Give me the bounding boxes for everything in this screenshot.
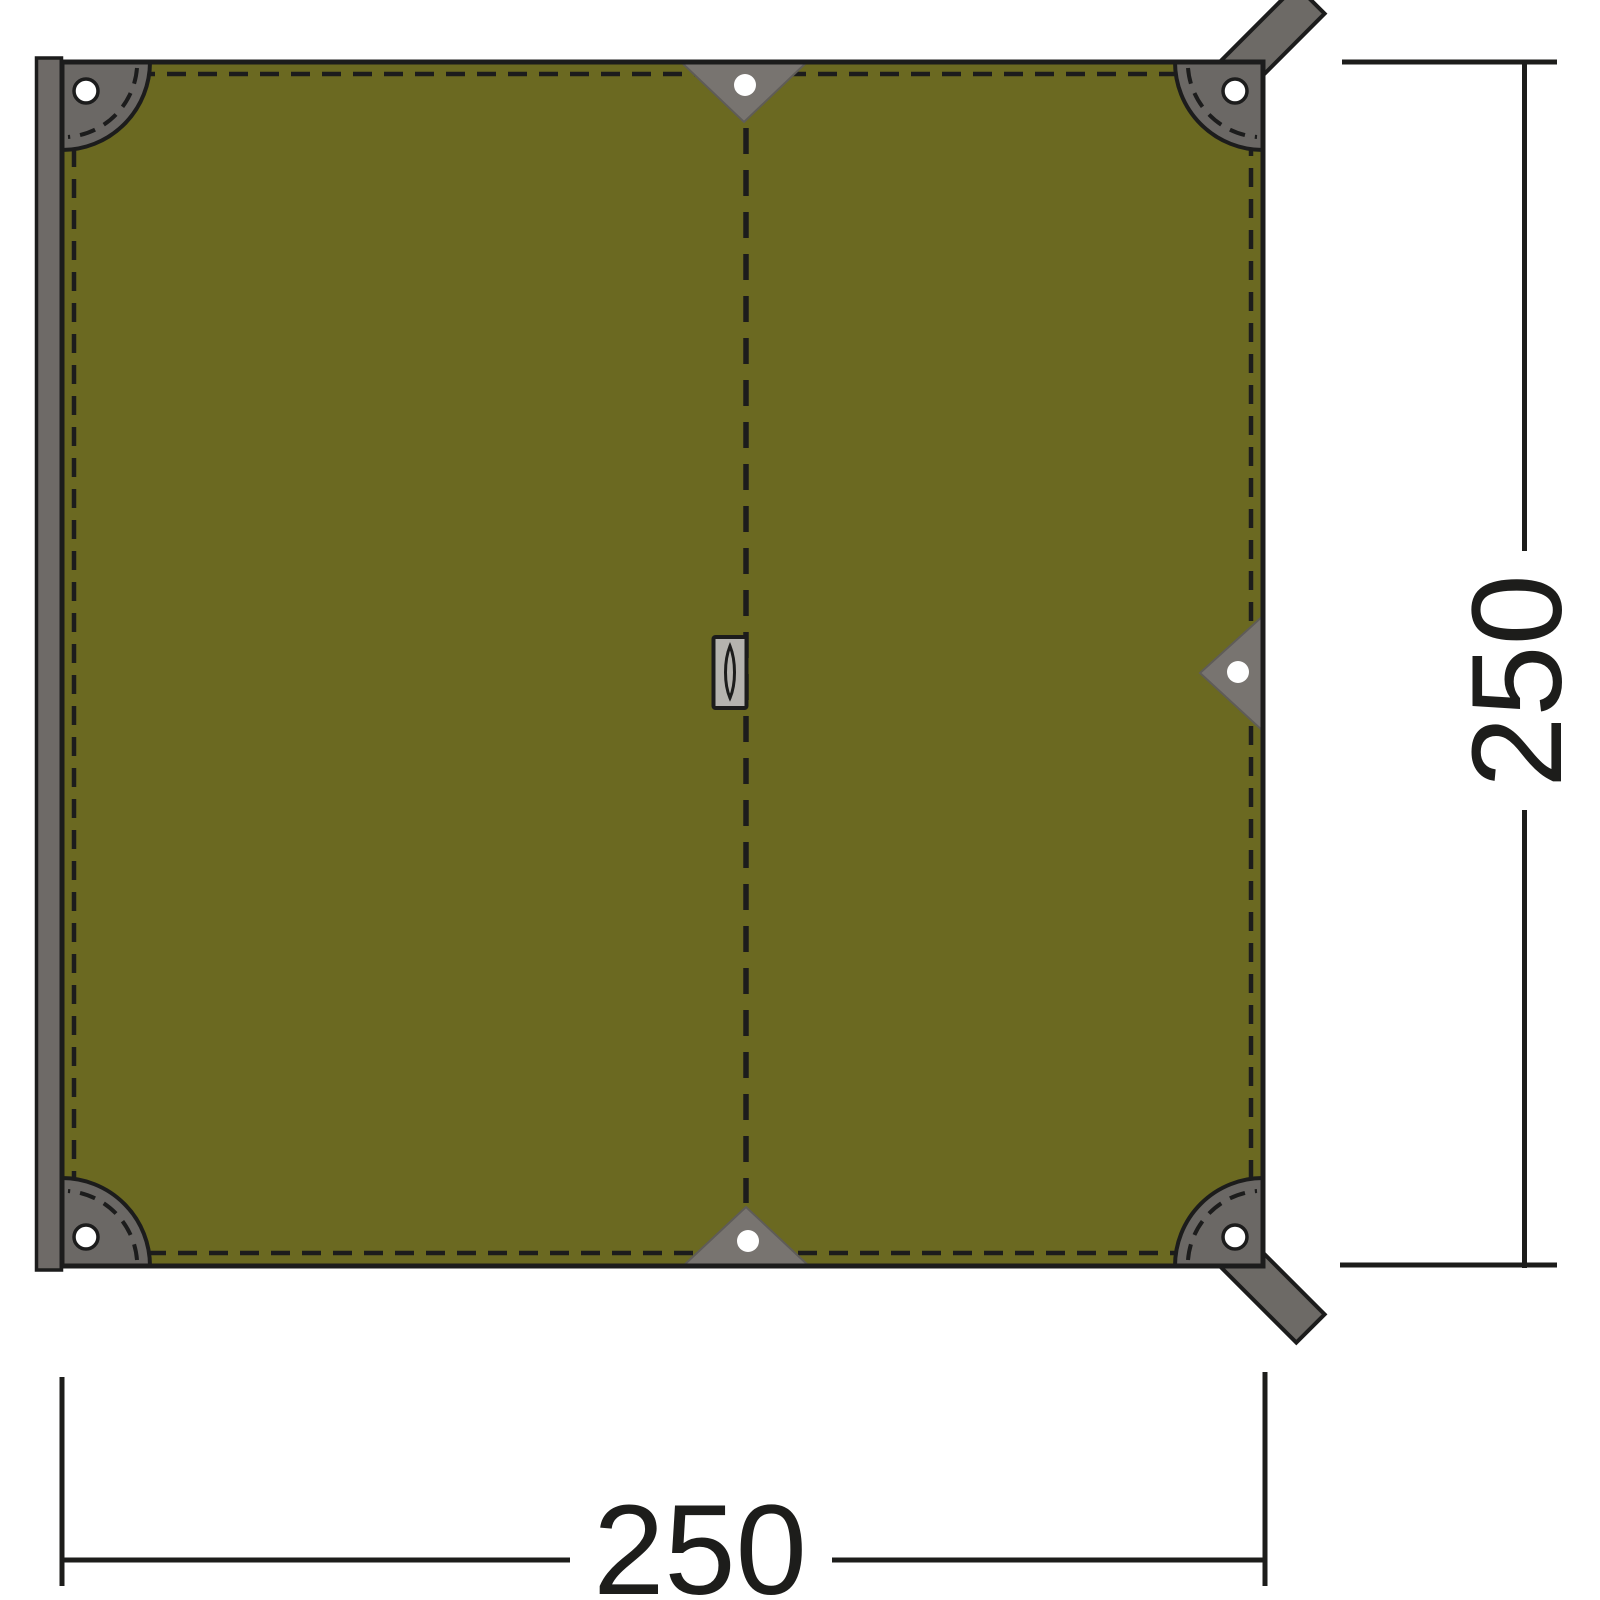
grommet-tab-top: [734, 74, 756, 96]
grommet-tab-bottom: [737, 1230, 759, 1252]
tarp-panel: [62, 62, 1263, 1266]
grommet-bottom-left: [74, 1225, 98, 1249]
width-dimension: 250: [62, 1372, 1267, 1600]
width-dimension-label: 250: [593, 1479, 807, 1600]
center-slot: [714, 637, 747, 708]
pole-slot-opening: [726, 646, 735, 698]
height-dimension-label: 250: [1446, 574, 1589, 788]
height-dimension: 250: [1340, 62, 1589, 1268]
grommet-top-right: [1223, 79, 1247, 103]
left-edge-bar: [37, 58, 62, 1270]
tarp-dimension-diagram: 250 250: [0, 0, 1600, 1600]
diagram-canvas: 250 250: [0, 0, 1600, 1600]
grommet-top-left: [74, 79, 98, 103]
grommet-tab-right: [1227, 661, 1249, 683]
grommet-bottom-right: [1223, 1225, 1247, 1249]
